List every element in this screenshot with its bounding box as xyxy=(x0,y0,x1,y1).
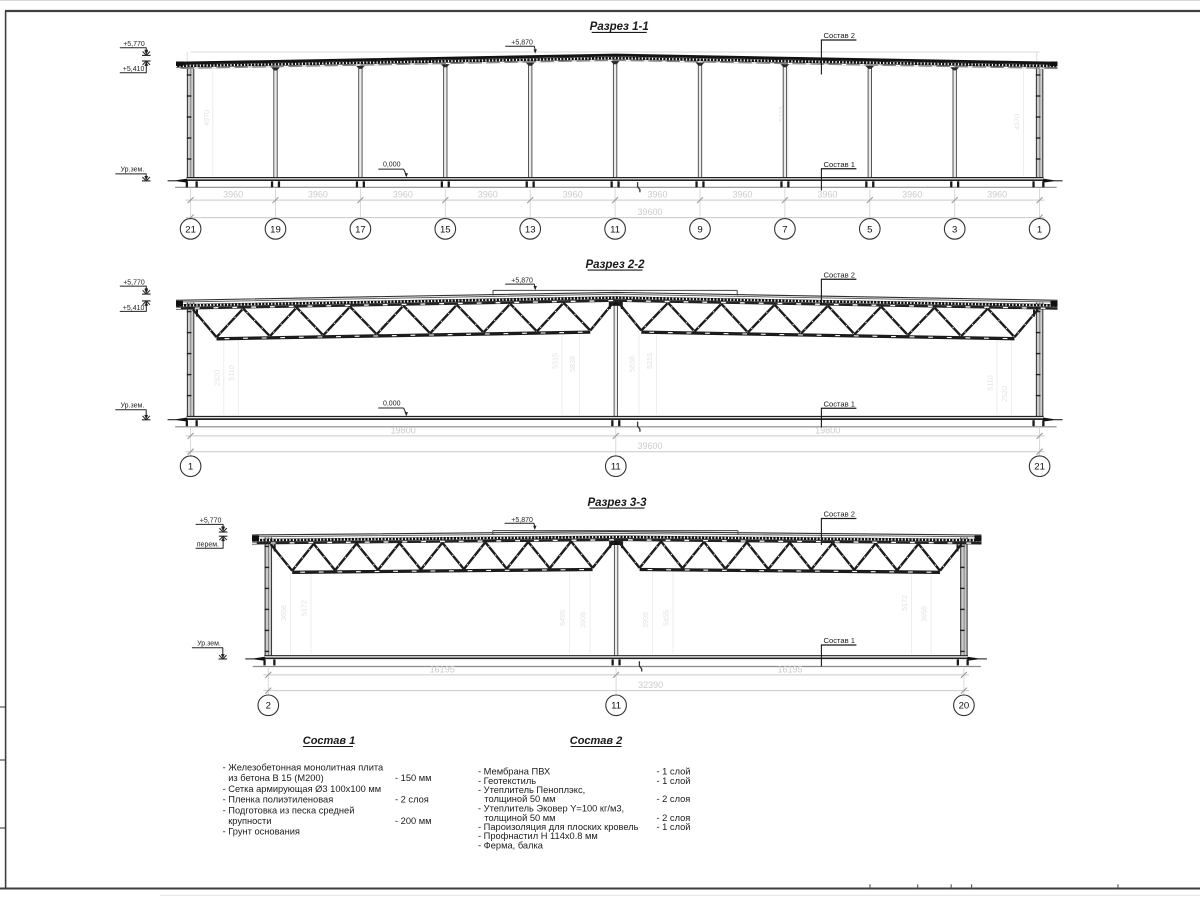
svg-text:2520: 2520 xyxy=(212,370,221,386)
svg-text:+5,770: +5,770 xyxy=(200,518,222,525)
svg-text:19800: 19800 xyxy=(815,425,840,435)
svg-text:- Сетка армирующая Ø3 100х100: - Сетка армирующая Ø3 100х100 мм xyxy=(223,784,382,794)
svg-text:13: 13 xyxy=(525,224,536,235)
svg-text:21: 21 xyxy=(185,224,196,235)
svg-text:3960: 3960 xyxy=(308,190,328,200)
svg-text:2520: 2520 xyxy=(1000,386,1009,402)
svg-text:9: 9 xyxy=(697,224,702,235)
svg-text:Состав 2: Состав 2 xyxy=(824,271,856,280)
svg-text:- 2 слоя: - 2 слоя xyxy=(395,795,429,805)
svg-text:0,000: 0,000 xyxy=(383,162,401,169)
svg-text:+5,870: +5,870 xyxy=(511,278,533,285)
svg-text:- Подготовка из песка средней: - Подготовка из песка средней xyxy=(223,805,355,815)
svg-text:3960: 3960 xyxy=(732,190,752,200)
svg-text:- Грунт основания: - Грунт основания xyxy=(223,827,300,837)
svg-text:Разрез 3-3: Разрез 3-3 xyxy=(587,497,647,509)
svg-text:+5,770: +5,770 xyxy=(123,279,145,286)
svg-text:- Ферма, балка: - Ферма, балка xyxy=(478,841,544,851)
svg-text:15: 15 xyxy=(440,224,451,235)
svg-text:7: 7 xyxy=(782,224,787,235)
svg-text:32390: 32390 xyxy=(638,680,663,690)
svg-text:3960: 3960 xyxy=(563,190,583,200)
svg-text:Состав 2: Состав 2 xyxy=(824,510,856,519)
svg-text:3960: 3960 xyxy=(647,190,667,200)
svg-text:20: 20 xyxy=(959,701,970,712)
svg-text:5315: 5315 xyxy=(551,353,560,369)
svg-text:3960: 3960 xyxy=(478,190,498,200)
svg-text:Ур.зем.: Ур.зем. xyxy=(197,641,221,648)
svg-text:Состав 1: Состав 1 xyxy=(824,399,856,408)
svg-text:5495: 5495 xyxy=(558,610,567,626)
svg-text:0,000: 0,000 xyxy=(383,401,401,408)
svg-text:Состав 1: Состав 1 xyxy=(824,636,856,645)
svg-text:Разрез 1-1: Разрез 1-1 xyxy=(590,21,649,33)
svg-text:Разрез 2-2: Разрез 2-2 xyxy=(585,259,645,271)
svg-text:Состав 2: Состав 2 xyxy=(570,735,623,747)
svg-text:4970: 4970 xyxy=(1013,114,1022,130)
svg-text:3960: 3960 xyxy=(393,190,413,200)
svg-text:16195: 16195 xyxy=(777,664,802,674)
svg-text:3909: 3909 xyxy=(641,612,650,628)
svg-text:крупности: крупности xyxy=(228,816,271,826)
svg-text:19800: 19800 xyxy=(391,425,416,435)
svg-text:5838: 5838 xyxy=(628,356,637,372)
svg-text:11: 11 xyxy=(610,224,620,235)
svg-text:11: 11 xyxy=(611,701,621,712)
svg-text:3960: 3960 xyxy=(902,190,922,200)
svg-text:Состав 1: Состав 1 xyxy=(303,735,356,747)
svg-text:- 1 слой: - 1 слой xyxy=(657,776,691,786)
svg-text:5: 5 xyxy=(867,224,872,235)
svg-text:перем.: перем. xyxy=(197,542,219,549)
svg-text:Состав 2: Состав 2 xyxy=(824,31,856,40)
svg-text:- Железобетонная монолитная п: - Железобетонная монолитная плита xyxy=(223,763,384,773)
svg-text:3: 3 xyxy=(952,224,957,235)
svg-text:- 2 слоя: - 2 слоя xyxy=(657,794,691,804)
svg-text:3658: 3658 xyxy=(920,606,929,622)
svg-text:3658: 3658 xyxy=(279,605,288,621)
svg-text:39600: 39600 xyxy=(637,207,662,217)
svg-text:Состав 1: Состав 1 xyxy=(824,160,856,169)
svg-text:из бетона В 15 (М200): из бетона В 15 (М200) xyxy=(228,773,324,783)
svg-text:4970: 4970 xyxy=(202,110,211,126)
svg-text:5315: 5315 xyxy=(645,353,654,369)
svg-text:- 1 слой: - 1 слой xyxy=(657,822,691,832)
svg-text:- 150 мм: - 150 мм xyxy=(395,773,432,783)
svg-text:- 200 мм: - 200 мм xyxy=(395,816,432,826)
svg-text:- Пленка полиэтиленовая: - Пленка полиэтиленовая xyxy=(223,795,334,805)
svg-text:Ур.зем.: Ур.зем. xyxy=(121,167,145,174)
svg-text:39600: 39600 xyxy=(637,441,662,451)
svg-text:11: 11 xyxy=(611,462,621,473)
svg-text:3960: 3960 xyxy=(223,190,243,200)
svg-text:5172: 5172 xyxy=(300,600,309,616)
svg-text:1: 1 xyxy=(188,462,193,473)
svg-text:+5,410: +5,410 xyxy=(123,305,145,312)
svg-text:21: 21 xyxy=(1034,462,1045,473)
svg-text:5838: 5838 xyxy=(568,356,577,372)
svg-text:3960: 3960 xyxy=(817,190,837,200)
svg-text:5110: 5110 xyxy=(227,365,236,380)
svg-text:5172: 5172 xyxy=(900,595,909,611)
svg-text:17: 17 xyxy=(355,224,366,235)
svg-text:16195: 16195 xyxy=(430,664,455,674)
svg-text:Ур.зем.: Ур.зем. xyxy=(121,403,145,410)
svg-text:+5,870: +5,870 xyxy=(511,40,533,47)
svg-text:2: 2 xyxy=(266,701,271,712)
svg-text:+5,870: +5,870 xyxy=(511,517,533,524)
svg-text:+5,410: +5,410 xyxy=(123,66,145,73)
svg-text:3960: 3960 xyxy=(987,190,1007,200)
svg-text:+5,770: +5,770 xyxy=(123,41,145,48)
svg-text:5110: 5110 xyxy=(986,375,995,390)
svg-text:1: 1 xyxy=(1037,224,1042,235)
svg-text:5455: 5455 xyxy=(662,610,671,626)
svg-text:3909: 3909 xyxy=(579,612,588,628)
svg-text:19: 19 xyxy=(270,224,281,235)
